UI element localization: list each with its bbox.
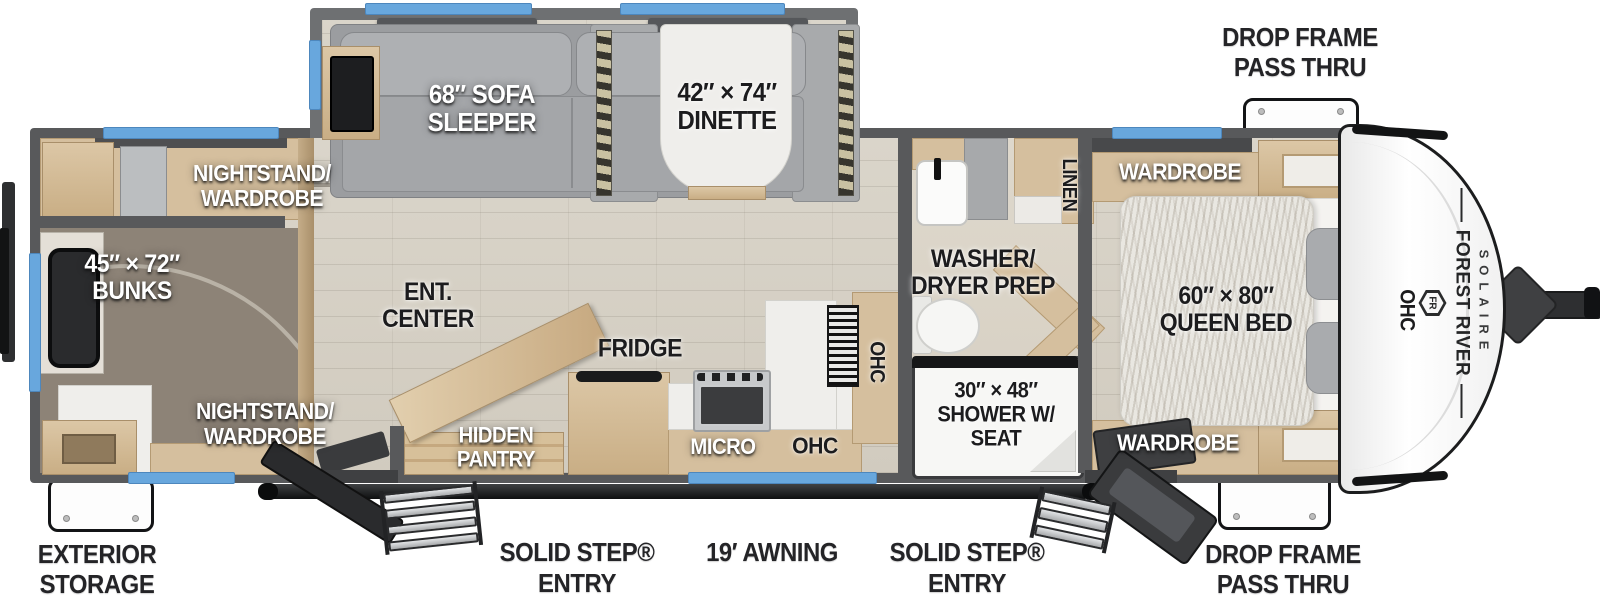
- label-nightstand-top: NIGHTSTAND/ WARDROBE: [193, 161, 331, 211]
- label-shower: 30″ × 48″ SHOWER W/ SEAT: [937, 378, 1054, 449]
- brand-logo-monogram: FR: [1427, 296, 1438, 309]
- bedroom-soffit: [1092, 138, 1252, 152]
- sofa-seat-seam: [571, 98, 573, 188]
- floor-plan-stage: SOLAIRE FOREST RIVER FR 68″ SOFA SLEEPER…: [0, 0, 1600, 610]
- label-solid-step-right: SOLID STEP® ENTRY: [890, 537, 1045, 599]
- bathroom-wall-right: [1078, 138, 1092, 473]
- shower-door-track: [912, 356, 1078, 368]
- hitch-coupler: [1584, 287, 1600, 319]
- brand-model: SOLAIRE: [1477, 250, 1492, 357]
- awning-cap-left: [258, 483, 278, 500]
- dinette-bench-right-trim: [838, 30, 854, 196]
- brand-logo-icon: FR: [1419, 290, 1447, 316]
- label-fridge: FRIDGE: [598, 336, 682, 363]
- stove-glass: [699, 385, 765, 426]
- label-bunks: 45″ × 72″ BUNKS: [84, 251, 179, 305]
- label-solid-step-left: SOLID STEP® ENTRY: [500, 537, 655, 599]
- label-dinette: 42″ × 74″ DINETTE: [677, 78, 776, 134]
- window-kitchen: [688, 472, 877, 484]
- brand-rule-right: [1461, 384, 1463, 418]
- bath-faucet: [934, 158, 941, 180]
- bunk-room-wall: [40, 216, 285, 228]
- tv-screen: [330, 56, 374, 132]
- step-tread: [388, 532, 479, 551]
- window-bedroom-top: [1112, 127, 1222, 139]
- stove-knobs: [697, 373, 763, 381]
- label-drop-frame-bottom: DROP FRAME PASS THRU: [1205, 540, 1361, 600]
- entry-steps-left: [379, 481, 483, 555]
- window-rear-wall: [29, 253, 41, 392]
- brand-title-row: FOREST RIVER: [1451, 188, 1473, 418]
- label-wardrobe-top: WARDROBE: [1119, 160, 1241, 185]
- label-micro: MICRO: [690, 435, 755, 459]
- label-queen-bed: 60″ × 80″ QUEEN BED: [1160, 283, 1293, 337]
- label-ohc-kitchen: OHC: [792, 434, 838, 459]
- label-ohc-kitchen-vertical: OHC: [865, 341, 888, 383]
- window-slide-sofa: [365, 3, 532, 15]
- pantry-wall-stub: [390, 426, 404, 473]
- label-linen: LINEN: [1057, 159, 1079, 212]
- sink-drainboard: [827, 305, 859, 387]
- rear-appliance-box: [120, 146, 167, 218]
- fridge: [568, 372, 670, 475]
- label-ohc-bed: OHC: [1395, 289, 1418, 331]
- window-slide-side: [309, 40, 321, 110]
- fridge-handle: [576, 371, 662, 382]
- label-wardrobe-bottom: WARDROBE: [1117, 431, 1239, 456]
- window-rear-top: [103, 127, 279, 139]
- label-awning: 19′ AWNING: [706, 538, 838, 566]
- window-slide-dinette: [620, 3, 785, 15]
- label-sofa: 68″ SOFA SLEEPER: [428, 80, 536, 136]
- brand-rule-left: [1461, 188, 1463, 222]
- label-drop-frame-top: DROP FRAME PASS THRU: [1222, 23, 1378, 83]
- bed-head-cabinet-bottom-niche: [1282, 428, 1346, 462]
- window-rear-bottom: [128, 472, 235, 484]
- bed-head-cabinet-top-niche: [1282, 154, 1346, 188]
- exterior-storage-door: [48, 478, 154, 532]
- dinette-table-end-trim: [688, 186, 766, 200]
- bath-sink: [916, 160, 968, 226]
- rear-bottom-nightstand-niche: [62, 434, 116, 464]
- pass-thru-door-bottom: [1218, 478, 1331, 530]
- label-nightstand-bottom: NIGHTSTAND/ WARDROBE: [196, 399, 334, 449]
- rear-bumper-bar: [0, 228, 9, 354]
- bathroom-wall-left: [898, 138, 912, 473]
- brand-block: SOLAIRE FOREST RIVER FR: [1419, 153, 1492, 453]
- bath-counter-gray: [964, 138, 1008, 220]
- label-hidden-pantry: HIDDEN PANTRY: [457, 423, 535, 471]
- label-ent-center: ENT. CENTER: [382, 279, 474, 333]
- linen-shelf: [1014, 196, 1062, 224]
- label-washer-dryer: WASHER/ DRYER PREP: [911, 246, 1055, 300]
- label-exterior-storage: EXTERIOR STORAGE: [38, 540, 157, 600]
- brand-maker: FOREST RIVER: [1451, 230, 1473, 376]
- toilet-bowl: [916, 298, 980, 354]
- dinette-bench-left-trim: [596, 30, 612, 196]
- rear-nightstand-cabinet: [42, 142, 114, 218]
